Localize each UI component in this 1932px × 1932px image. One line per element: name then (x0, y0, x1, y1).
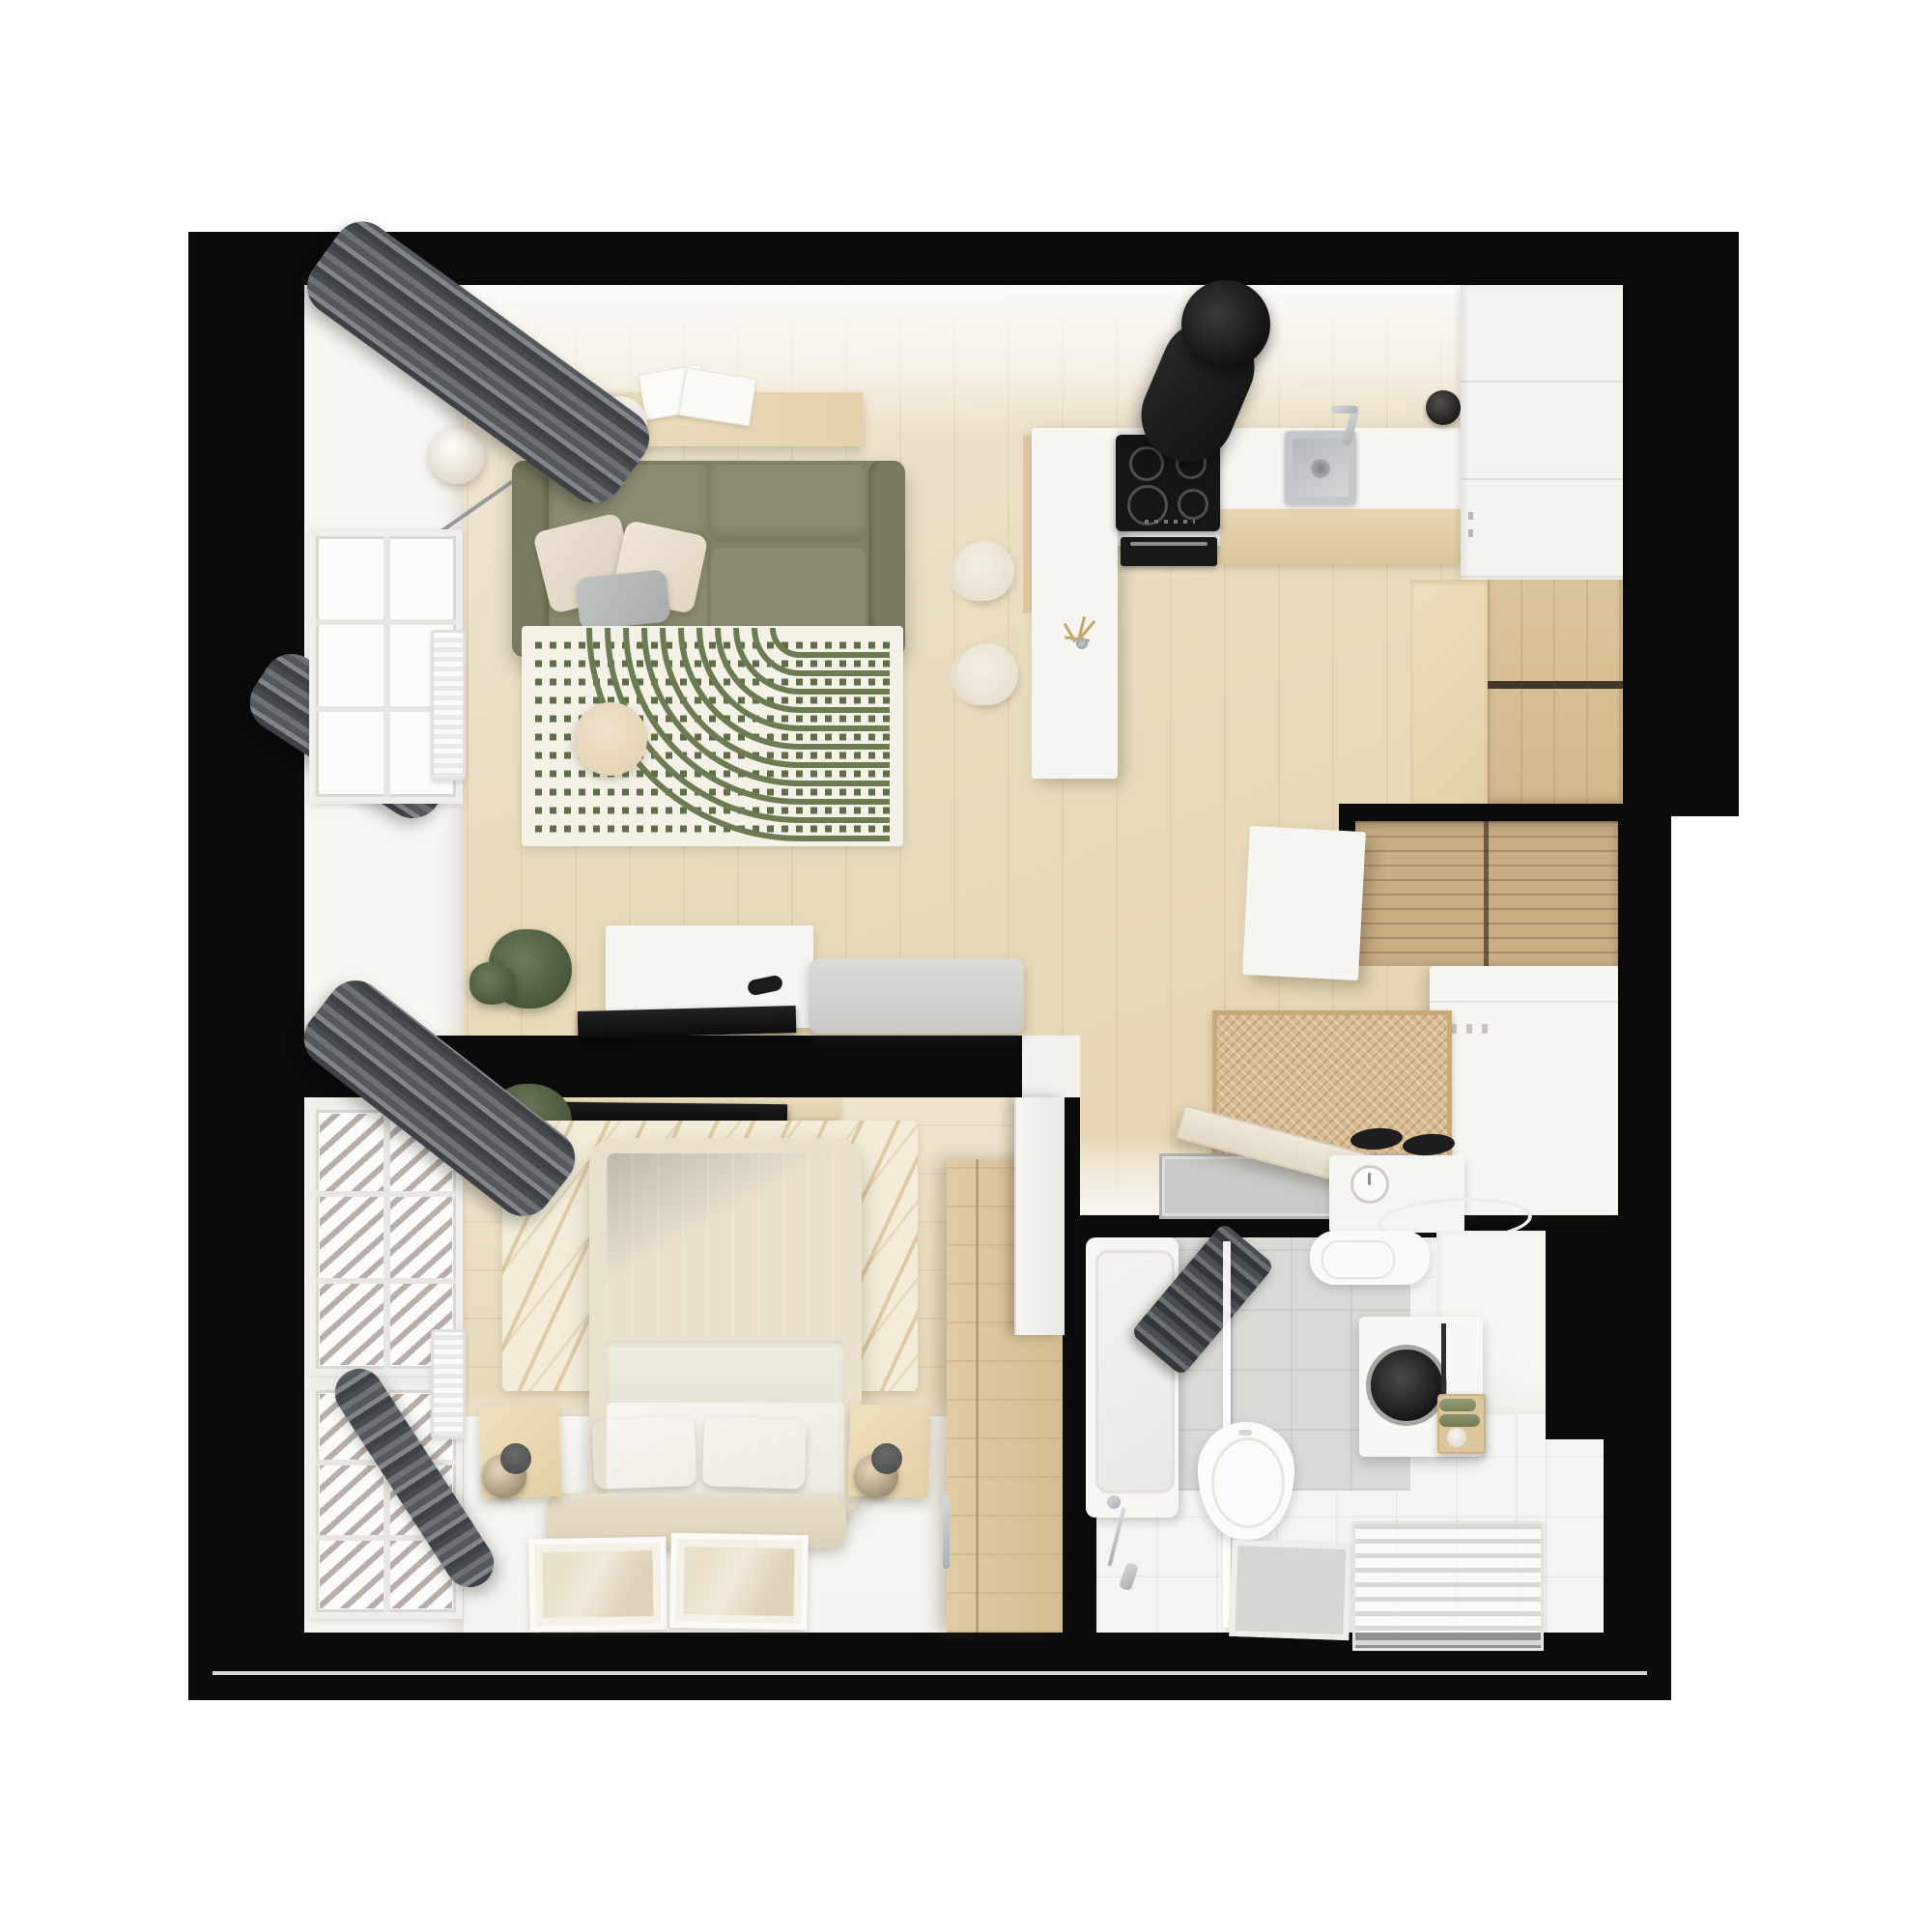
basin-inner (1321, 1240, 1395, 1279)
radiator-bedroom (431, 1329, 466, 1439)
wall-niche-top (1339, 804, 1671, 821)
bed-pillow-olive (592, 1416, 696, 1490)
lamp-disc-left (500, 1443, 531, 1474)
bar-chair (956, 643, 1018, 705)
oven-handle (1130, 542, 1207, 546)
wall-right-upper (1623, 232, 1739, 816)
gray-bench (809, 958, 1024, 1034)
bed-folded-sheet (607, 1341, 844, 1403)
scale-dial (1350, 1165, 1389, 1204)
bath-mat (1229, 1540, 1351, 1640)
wall-hall-vertical (1063, 1097, 1080, 1215)
wall-left (188, 232, 304, 1700)
tv-panel-living (578, 1006, 797, 1038)
art-frame (669, 1533, 809, 1630)
bathtub-basin (1095, 1250, 1175, 1493)
kitchen-faucet-spout (1331, 406, 1358, 413)
hall-wardrobe (1242, 826, 1366, 980)
twig-decor (1061, 616, 1103, 659)
kettle (1426, 390, 1461, 425)
shower-mixer (1107, 1495, 1121, 1509)
bathtub (1086, 1237, 1179, 1518)
radiator-living (431, 630, 466, 781)
round-side-table (574, 702, 647, 776)
toilet-seat-line (1211, 1437, 1285, 1528)
tall-white-cabinets (1461, 285, 1623, 580)
wall-bottom-shadow-line (213, 1671, 1647, 1675)
tall-cabinet-handles (1468, 512, 1473, 537)
bottle (1447, 1428, 1466, 1447)
window-bar (316, 1278, 456, 1284)
dial-needle (1368, 1173, 1371, 1185)
built-in-oven (1121, 537, 1217, 566)
washbasin (1310, 1231, 1430, 1285)
lamp-disc-right (871, 1443, 902, 1474)
bathroom-floor-extension (1546, 1439, 1604, 1637)
bed-pillow-olive (702, 1416, 807, 1490)
kitchen-base-cabinet-strip (1220, 509, 1461, 564)
corner-counter-wood (1410, 580, 1488, 804)
cabinet-grain (1488, 580, 1623, 804)
throw-pillow-gray (575, 569, 670, 631)
console-handle-dots (1451, 1024, 1490, 1034)
window-bar (316, 1191, 456, 1197)
floor-lamp-globe (429, 428, 485, 484)
rolled-towel-green (1439, 1399, 1476, 1411)
towel-ladder-rack (1352, 1521, 1544, 1651)
washer-drum (1366, 1345, 1447, 1426)
range-hood-top (1181, 280, 1270, 369)
wall-bathroom-right-step (1546, 1237, 1671, 1439)
bed-duvet-olive (607, 1153, 844, 1341)
wardrobe-niche-doors (1355, 821, 1618, 966)
wardrobe-handle (943, 1495, 950, 1569)
toilet-hinge (1238, 1430, 1252, 1435)
bedroom-door-threshold (1022, 1036, 1080, 1097)
kitchen-island (1032, 428, 1118, 779)
cooktop-controls (1145, 520, 1195, 524)
sofa-back-cushion (711, 465, 866, 542)
open-bedroom-door (1014, 1097, 1065, 1335)
cooktop-ring (1178, 489, 1208, 520)
potted-plant-living-leaf (469, 962, 516, 1005)
console-seam (1430, 1001, 1618, 1003)
wall-bathroom-right-lower (1604, 1439, 1671, 1637)
bar-chair (954, 541, 1014, 601)
window-bar (316, 619, 456, 625)
window-mullion (384, 1110, 390, 1369)
rolled-towel-green (1439, 1414, 1480, 1427)
art-frame (528, 1537, 668, 1632)
twig-center (1076, 638, 1088, 649)
sink-drain (1311, 459, 1330, 478)
wardrobe-seam (976, 1159, 979, 1633)
corner-cabinet-wood (1488, 580, 1623, 804)
window-mullion (384, 536, 390, 797)
floor-plan (0, 0, 1932, 1932)
niche-door-gap (1484, 821, 1489, 966)
